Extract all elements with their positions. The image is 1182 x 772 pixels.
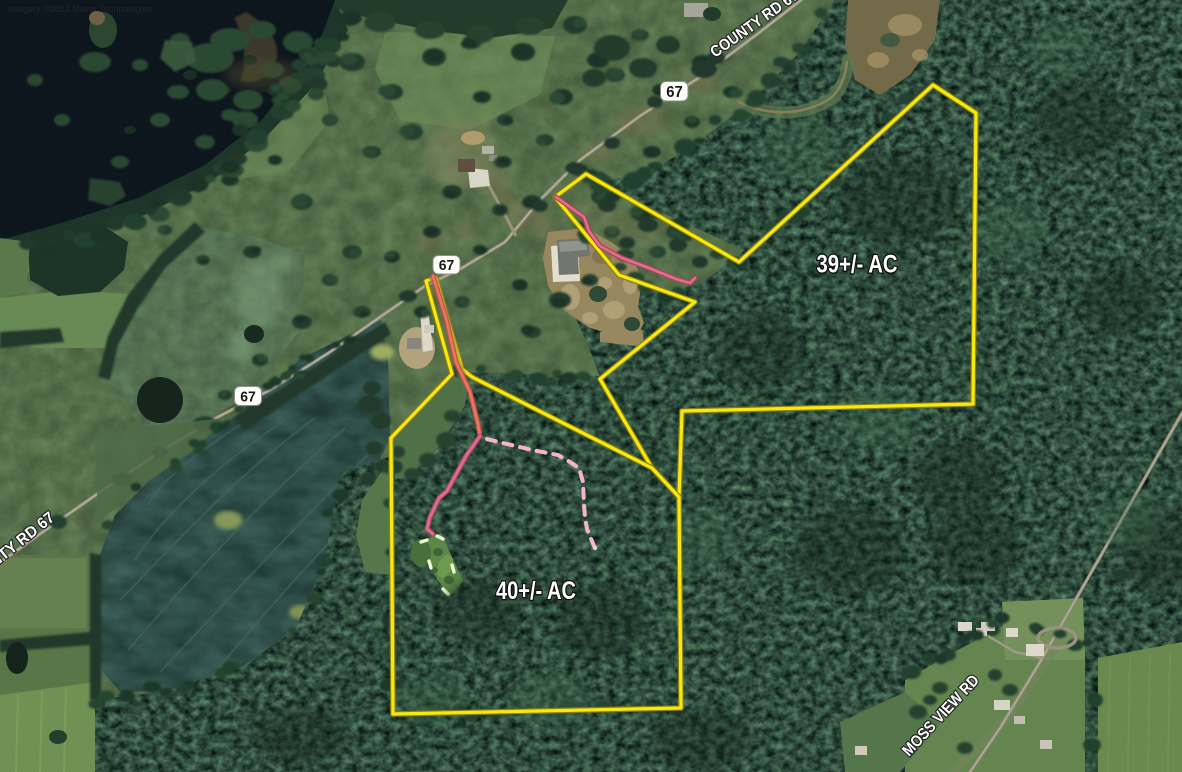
svg-text:40+/- AC: 40+/- AC [496, 577, 576, 605]
svg-text:67: 67 [240, 389, 256, 406]
svg-text:39+/- AC: 39+/- AC [817, 251, 898, 279]
svg-text:Imagery ©2022 Maxar Technologi: Imagery ©2022 Maxar Technologies [8, 4, 153, 14]
svg-text:67: 67 [439, 257, 455, 274]
svg-text:67: 67 [666, 84, 683, 101]
